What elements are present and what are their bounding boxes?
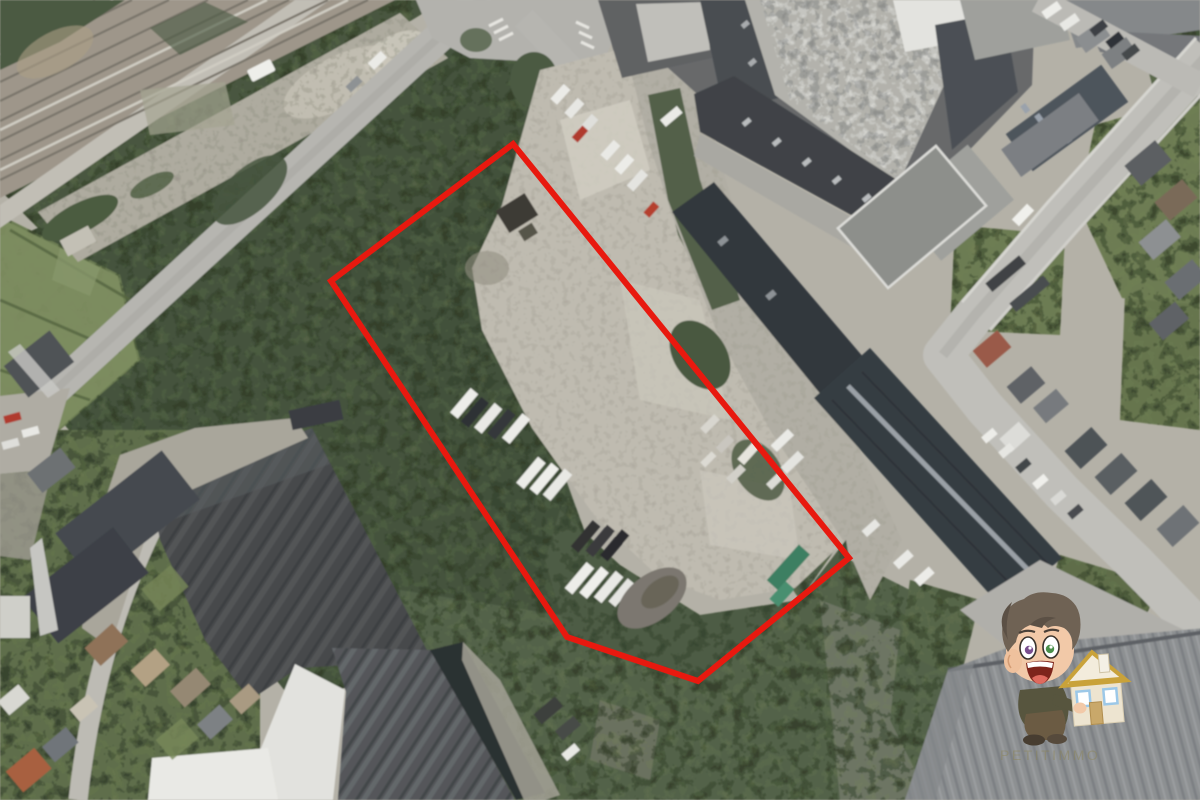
svg-text:PETITIMMO: PETITIMMO xyxy=(1000,747,1100,763)
